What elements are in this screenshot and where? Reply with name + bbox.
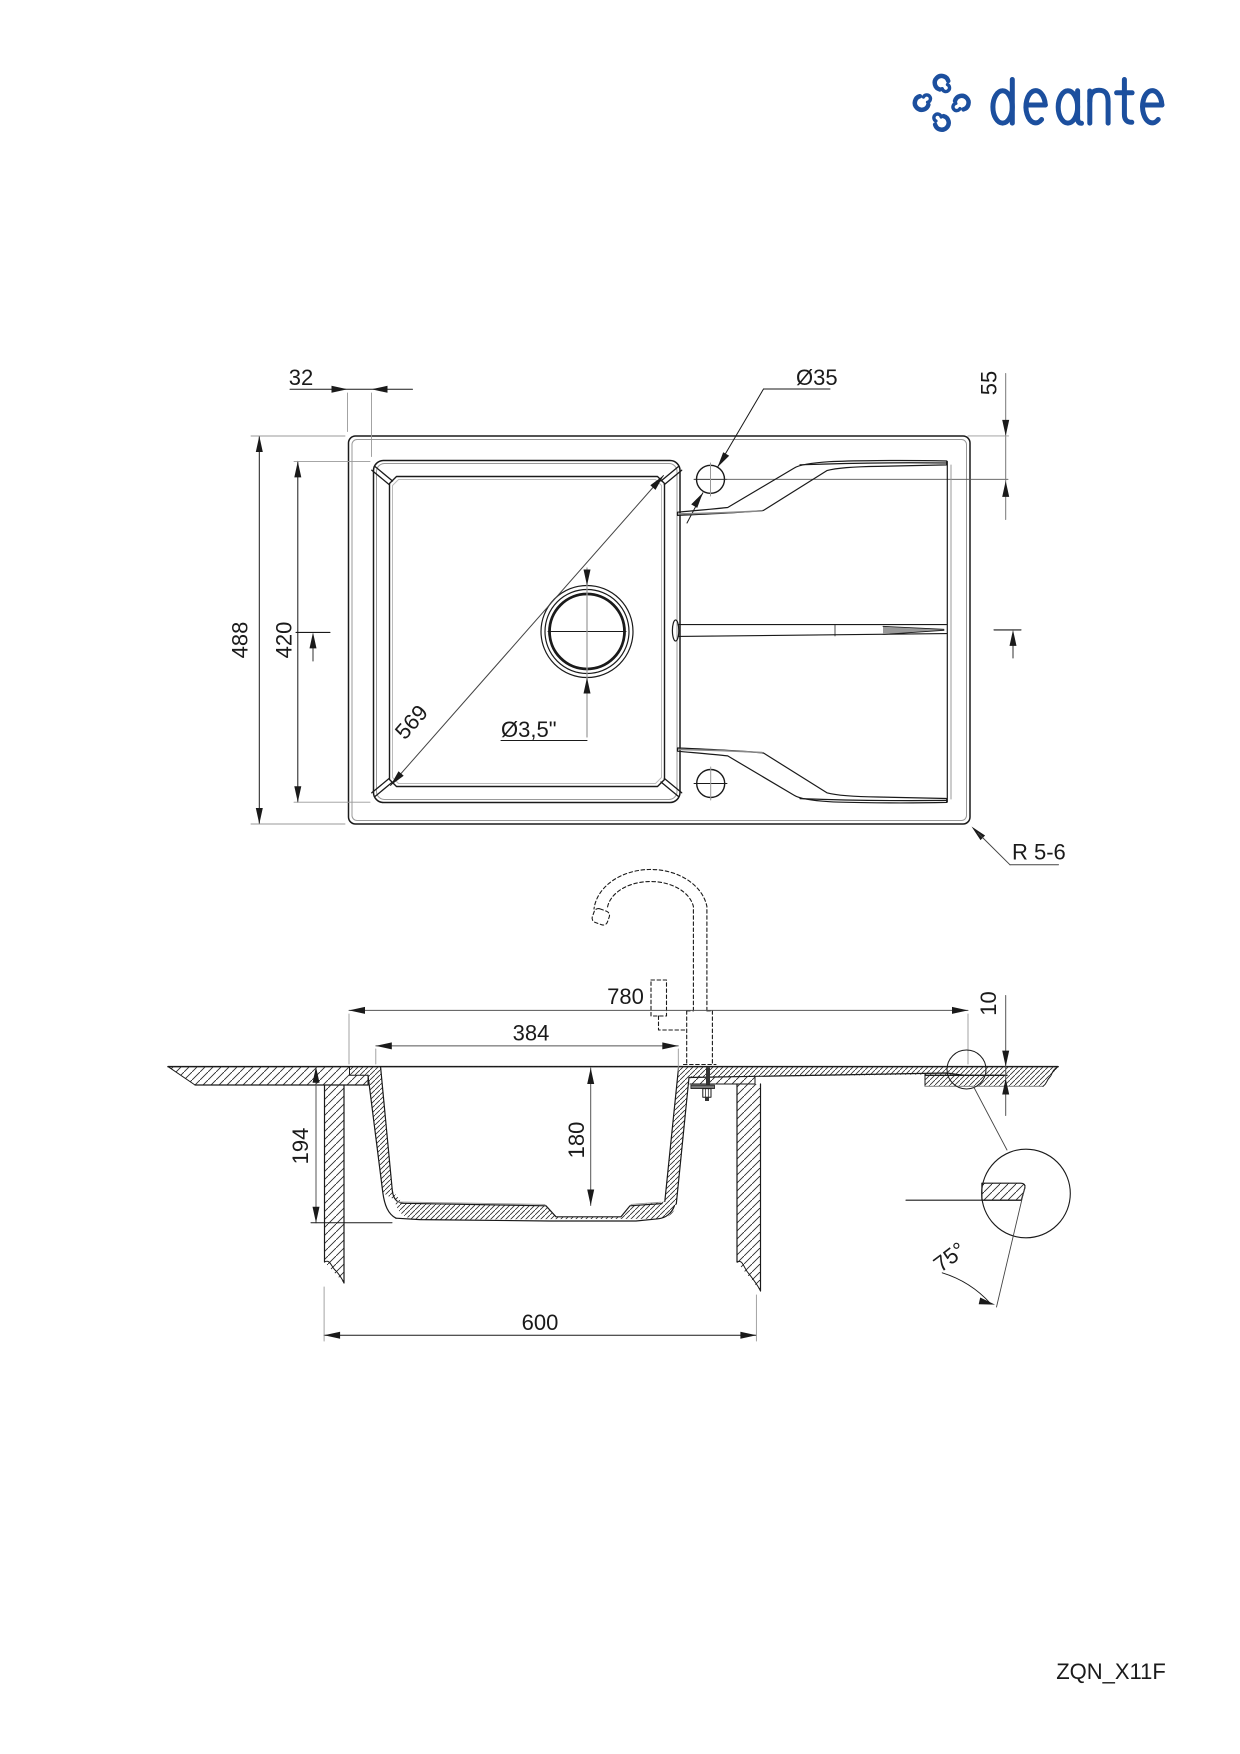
- svg-text:32: 32: [289, 365, 313, 390]
- svg-text:ZQN_X11F: ZQN_X11F: [1056, 1659, 1166, 1684]
- svg-text:384: 384: [513, 1021, 550, 1046]
- svg-text:194: 194: [288, 1128, 313, 1165]
- svg-text:Ø35: Ø35: [796, 365, 838, 390]
- svg-text:180: 180: [564, 1122, 589, 1159]
- svg-text:488: 488: [228, 622, 253, 659]
- svg-text:600: 600: [522, 1310, 559, 1335]
- svg-text:10: 10: [976, 991, 1001, 1015]
- svg-text:780: 780: [607, 984, 644, 1009]
- svg-text:55: 55: [977, 371, 1002, 395]
- svg-text:R 5-6: R 5-6: [1012, 840, 1066, 865]
- svg-text:Ø3,5": Ø3,5": [501, 717, 557, 742]
- svg-text:420: 420: [272, 622, 297, 659]
